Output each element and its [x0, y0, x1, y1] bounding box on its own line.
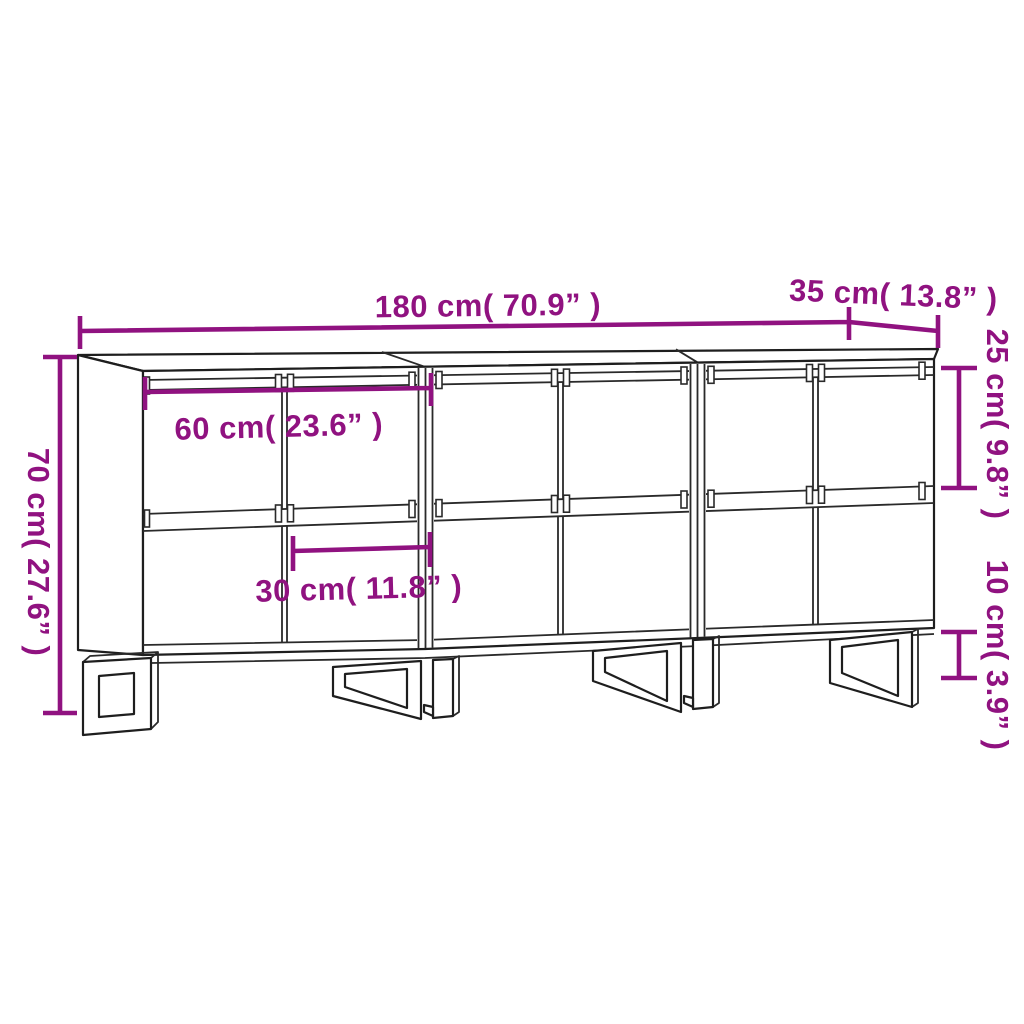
- front-face: [143, 359, 934, 663]
- section-gap-2: [689, 364, 706, 638]
- leg-mid-right-pair: [593, 636, 719, 712]
- product-dimension-diagram: 180 cm( 70.9” ) 35 cm( 13.8” ) 70 cm( 27…: [0, 0, 1024, 1024]
- leg-left: [83, 652, 158, 735]
- dimension-label-section-width: 60 cm( 23.6” ): [174, 406, 383, 446]
- dim-upper-door-height: 25 cm( 9.8” ): [941, 329, 1015, 520]
- dimension-label-total-height: 70 cm( 27.6” ): [21, 448, 56, 657]
- section-gap-1: [417, 368, 434, 648]
- dim-depth: 35 cm( 13.8” ): [788, 272, 998, 348]
- dim-total-width: 180 cm( 70.9” ): [80, 287, 849, 349]
- left-side-panel: [78, 355, 143, 655]
- dimension-label-depth: 35 cm( 13.8” ): [788, 272, 998, 316]
- dimension-label-upper-door-height: 25 cm( 9.8” ): [980, 329, 1015, 520]
- dim-leg-height: 10 cm( 3.9” ): [941, 560, 1015, 751]
- dim-total-height: 70 cm( 27.6” ): [21, 357, 77, 713]
- leg-mid-left-pair: [333, 656, 459, 719]
- leg-right: [830, 629, 918, 707]
- cabinet-line-art: [78, 349, 938, 735]
- dimension-label-leg-height: 10 cm( 3.9” ): [980, 560, 1015, 751]
- dimension-label-total-width: 180 cm( 70.9” ): [374, 287, 601, 325]
- sideboard-diagram-canvas: 180 cm( 70.9” ) 35 cm( 13.8” ) 70 cm( 27…: [0, 0, 1024, 1024]
- dimension-label-door-width: 30 cm( 11.8” ): [255, 568, 463, 608]
